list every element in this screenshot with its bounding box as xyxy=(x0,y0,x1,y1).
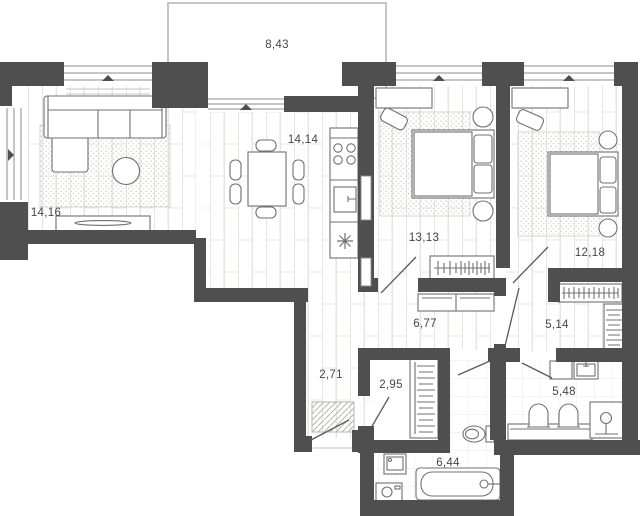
wall-segment xyxy=(490,360,506,440)
wall-segment xyxy=(494,440,640,455)
wall-segment xyxy=(294,302,306,438)
wall-segment xyxy=(284,96,362,112)
wall-segment xyxy=(152,62,208,108)
wall-segment xyxy=(556,348,622,362)
nightstand xyxy=(473,201,493,221)
wardrobe-hall-closet xyxy=(558,284,622,302)
wall-segment xyxy=(496,84,510,268)
bedroom-2-bed xyxy=(548,152,618,216)
master-sink xyxy=(550,361,598,379)
room-area-label-hallway: 6,77 xyxy=(413,318,437,330)
tv-console xyxy=(56,216,150,231)
kitchen-sink xyxy=(334,187,356,212)
vent-shaft xyxy=(361,258,371,286)
wall-segment xyxy=(610,62,638,86)
wall-segment xyxy=(358,360,370,396)
room-area-label-bath-master: 5,48 xyxy=(552,386,576,398)
wall-segment xyxy=(360,500,514,516)
wall-segment xyxy=(0,202,28,260)
bathroom-sink xyxy=(384,454,406,474)
wall-segment xyxy=(500,455,514,502)
wall-segment xyxy=(622,62,638,442)
wall-segment xyxy=(482,62,524,86)
room-area-label-wardrobe-hall: 5,14 xyxy=(545,319,569,331)
vanity-counter xyxy=(508,424,592,440)
wall-segment xyxy=(194,288,308,302)
wall-segment xyxy=(28,230,196,244)
room-area-label-bedroom-2: 12,18 xyxy=(575,247,605,259)
kitchen-counter xyxy=(330,128,358,258)
living-room-side-window xyxy=(0,106,28,202)
floor-plan-svg: 8,43 14,16 14,14 13,13 12,18 6,77 5,14 2… xyxy=(0,0,640,516)
room-area-label-bathroom: 6,44 xyxy=(436,457,460,469)
bedroom-1-bed xyxy=(412,130,494,198)
room-area-label-balcony: 8,43 xyxy=(265,39,289,51)
wall-segment xyxy=(0,62,64,86)
room-area-label-bedroom-1: 13,13 xyxy=(409,232,439,244)
wall-segment xyxy=(438,352,450,453)
coffee-table xyxy=(113,158,140,185)
wall-segment xyxy=(374,278,378,292)
toilet xyxy=(463,426,494,442)
bedroom-1-window xyxy=(396,62,482,86)
wall-segment xyxy=(548,268,560,302)
closet-shelving xyxy=(410,358,438,438)
floor-plan: 8,43 14,16 14,14 13,13 12,18 6,77 5,14 2… xyxy=(0,0,640,516)
nightstand xyxy=(473,107,493,127)
balcony-door-window xyxy=(208,96,284,112)
bedroom-1-wardrobe xyxy=(430,256,494,280)
wall-segment xyxy=(358,440,450,453)
bathtub xyxy=(416,468,500,500)
wall-segment xyxy=(488,348,520,362)
room-area-label-kitchen-dining: 14,14 xyxy=(288,134,319,146)
room-area-label-living-room: 14,16 xyxy=(31,207,61,219)
shower xyxy=(590,402,624,438)
vent-shaft xyxy=(361,176,371,220)
wall-segment xyxy=(494,282,506,296)
room-area-label-entry-hall: 2,71 xyxy=(319,369,343,381)
wall-segment xyxy=(418,278,506,292)
doormat xyxy=(312,402,354,432)
wall-segment xyxy=(0,84,12,106)
wall-segment xyxy=(342,62,396,86)
hallway-console xyxy=(418,294,494,311)
washing-machine xyxy=(376,483,402,502)
dining-table xyxy=(248,152,286,206)
wardrobe-hall-shelves xyxy=(604,304,624,352)
wall-segment xyxy=(294,436,312,452)
room-area-label-closet: 2,95 xyxy=(379,379,403,391)
nightstand xyxy=(599,219,617,237)
living-room-window xyxy=(64,62,152,94)
nightstand xyxy=(599,131,617,149)
wall-segment xyxy=(358,348,450,360)
bedroom-2-window xyxy=(524,62,614,86)
